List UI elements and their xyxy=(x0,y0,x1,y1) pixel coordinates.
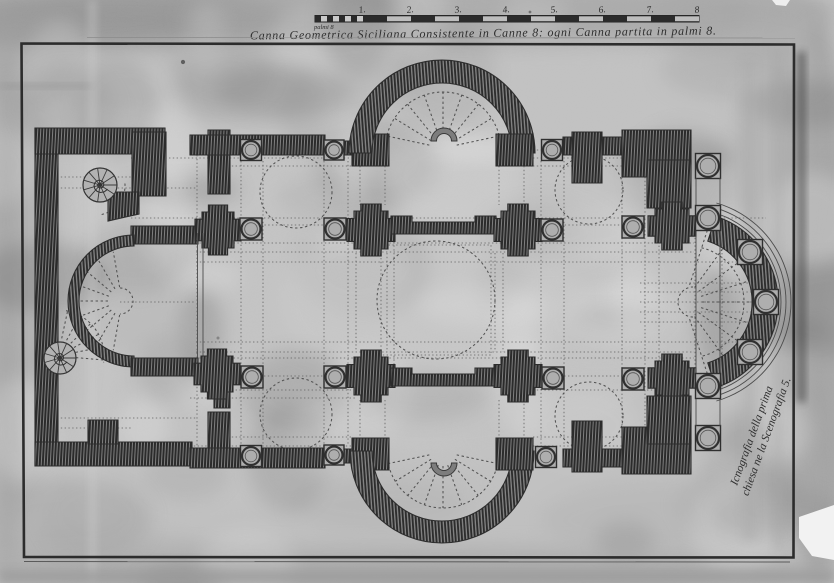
svg-text:1.: 1. xyxy=(358,5,366,16)
svg-text:6.: 6. xyxy=(598,5,606,16)
svg-text:7.: 7. xyxy=(646,5,654,16)
svg-text:5.: 5. xyxy=(550,5,558,16)
svg-text:4.: 4. xyxy=(502,5,510,16)
svg-text:2.: 2. xyxy=(406,5,414,16)
svg-text:3.: 3. xyxy=(453,5,462,16)
